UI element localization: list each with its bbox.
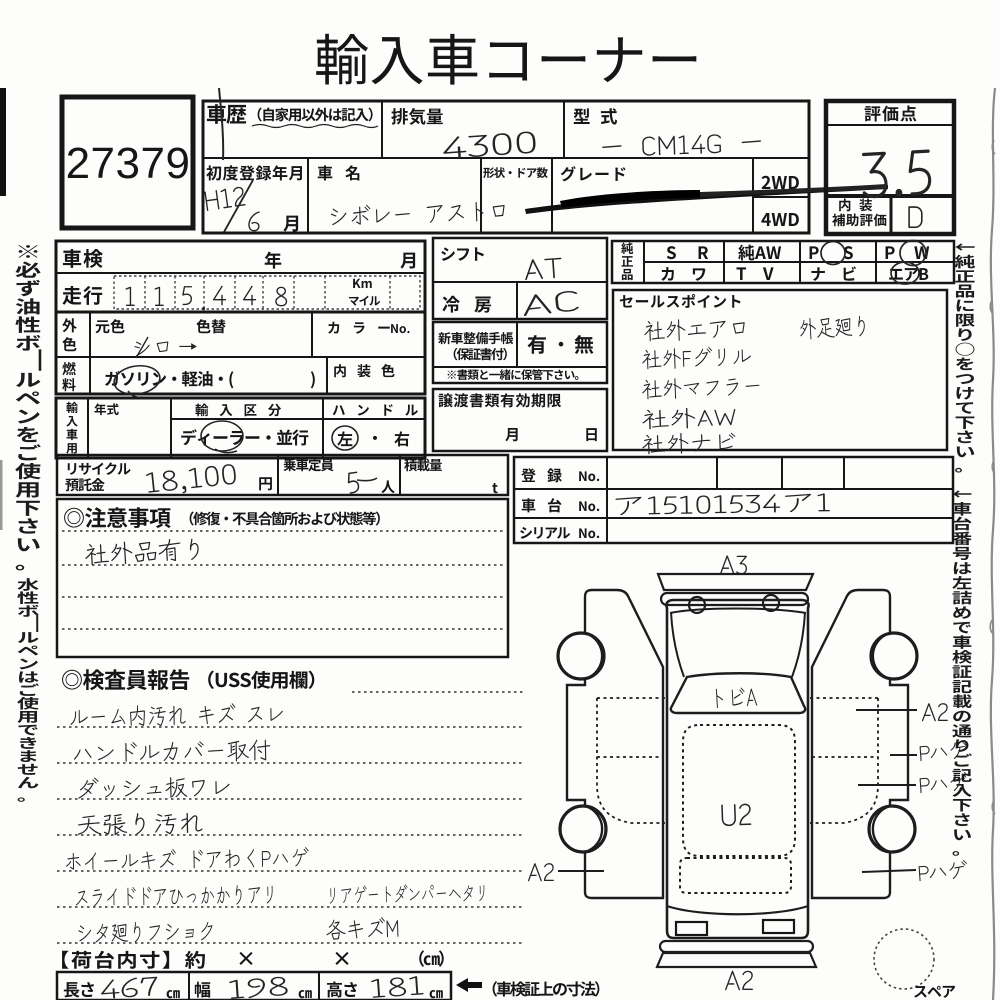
svg-text:27379: 27379 bbox=[66, 139, 191, 188]
